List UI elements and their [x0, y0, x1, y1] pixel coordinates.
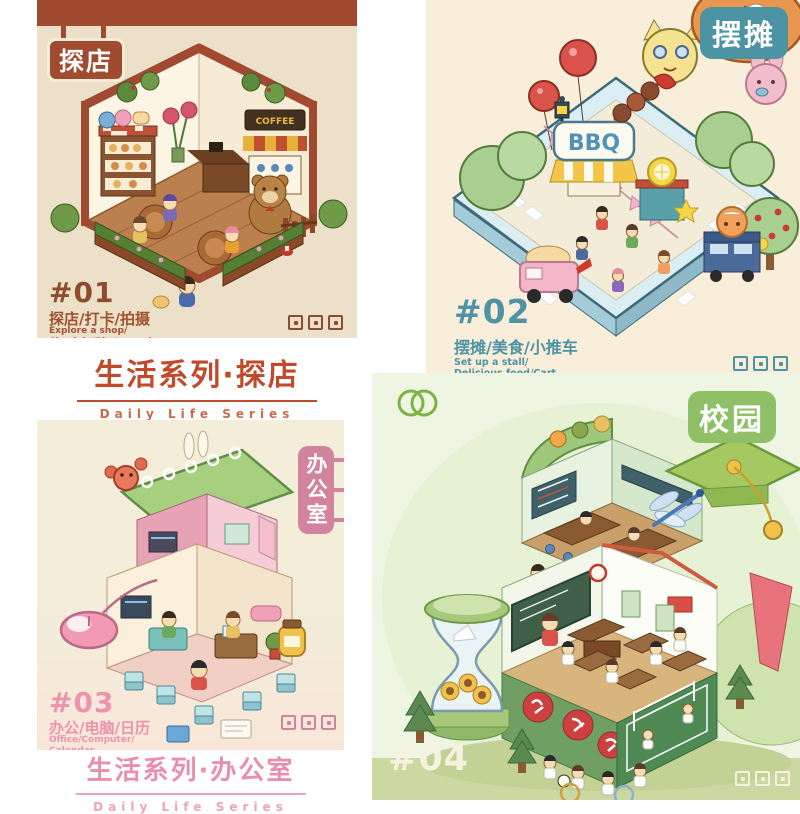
caption3-title: 生活系列·办公室: [37, 750, 344, 787]
badge-line: [332, 488, 344, 492]
badge-line: [332, 458, 344, 462]
poster4-badge: 校园: [688, 391, 776, 443]
poster2-watermarks: [733, 356, 788, 371]
stamp-icon: [288, 315, 303, 330]
poster1-watermarks: [288, 315, 343, 330]
stamp-glyph-icon: [739, 362, 743, 366]
striped-awning: [243, 136, 307, 151]
stamp-icon: [281, 715, 296, 730]
poster2-badge: 摆摊: [700, 7, 788, 59]
poster-explore-shop: COFFEE: [37, 0, 357, 338]
caption-explore-shop: 生活系列·探店 Daily Life Series: [37, 338, 357, 420]
stamp-icon: [753, 356, 768, 371]
poster1-top-bar: [37, 0, 357, 26]
stamp-glyph-icon: [327, 721, 331, 725]
poster3-number: #03: [49, 686, 114, 719]
poster4-watermarks: [735, 771, 790, 786]
honey-jar: [279, 620, 305, 656]
stamp-icon: [301, 715, 316, 730]
stamp-icon: [328, 315, 343, 330]
stamp-glyph-icon: [294, 321, 298, 325]
poster3-badge: 办公室: [298, 446, 334, 534]
brand-logo-circles: [396, 387, 440, 419]
stamp-icon: [735, 771, 750, 786]
poster1-badge: 探店: [47, 38, 125, 82]
stamp-glyph-icon: [741, 777, 745, 781]
poster-street-stall: BBQ: [426, 0, 800, 389]
poster2-tags: 摆摊/美食/小推车: [454, 334, 578, 358]
badge-line: [332, 518, 344, 522]
caption3-subtitle: Daily Life Series: [37, 800, 344, 814]
caption-office: 生活系列·办公室 Daily Life Series: [37, 750, 344, 800]
wall-clock: [590, 565, 606, 581]
poster3-tags-en: Office/Computer/ Calendar: [49, 735, 135, 750]
poster-campus: 校园 #04: [372, 373, 800, 800]
poster1-number: #01: [49, 276, 114, 309]
poster3-tags-en-line1: Office/Computer/: [49, 735, 135, 746]
coffee-sign-text: COFFEE: [256, 117, 295, 127]
caption1-rule: [77, 400, 317, 402]
caption1-subtitle: Daily Life Series: [37, 407, 357, 421]
stamp-glyph-icon: [314, 321, 318, 325]
bbq-sign-text: BBQ: [568, 131, 620, 156]
stamp-glyph-icon: [779, 362, 783, 366]
stamp-icon: [321, 715, 336, 730]
poster4-number: #04: [388, 739, 469, 779]
stamp-glyph-icon: [759, 362, 763, 366]
stamp-icon: [755, 771, 770, 786]
bunny-ears: [184, 431, 208, 459]
poster-office: 办公室 #03 办公/电脑/日历 Office/Computer/ Calend…: [37, 420, 344, 750]
stamp-glyph-icon: [287, 721, 291, 725]
poster1-tags-en: Explore a shop/ Check in/Photograph: [49, 326, 155, 338]
stamp-icon: [773, 356, 788, 371]
stamp-glyph-icon: [781, 777, 785, 781]
caption3-rule: [76, 793, 306, 795]
stamp-glyph-icon: [761, 777, 765, 781]
stamp-icon: [308, 315, 323, 330]
caption1-title: 生活系列·探店: [37, 350, 357, 394]
stamp-glyph-icon: [334, 321, 338, 325]
poster2-number: #02: [454, 292, 531, 331]
stamp-icon: [733, 356, 748, 371]
stamp-icon: [775, 771, 790, 786]
stamp-glyph-icon: [307, 721, 311, 725]
poster2-tags-en-line1: Set up a stall/: [454, 357, 556, 368]
poster3-watermarks: [281, 715, 336, 730]
poster1-tags-en-line1: Explore a shop/: [49, 326, 155, 337]
